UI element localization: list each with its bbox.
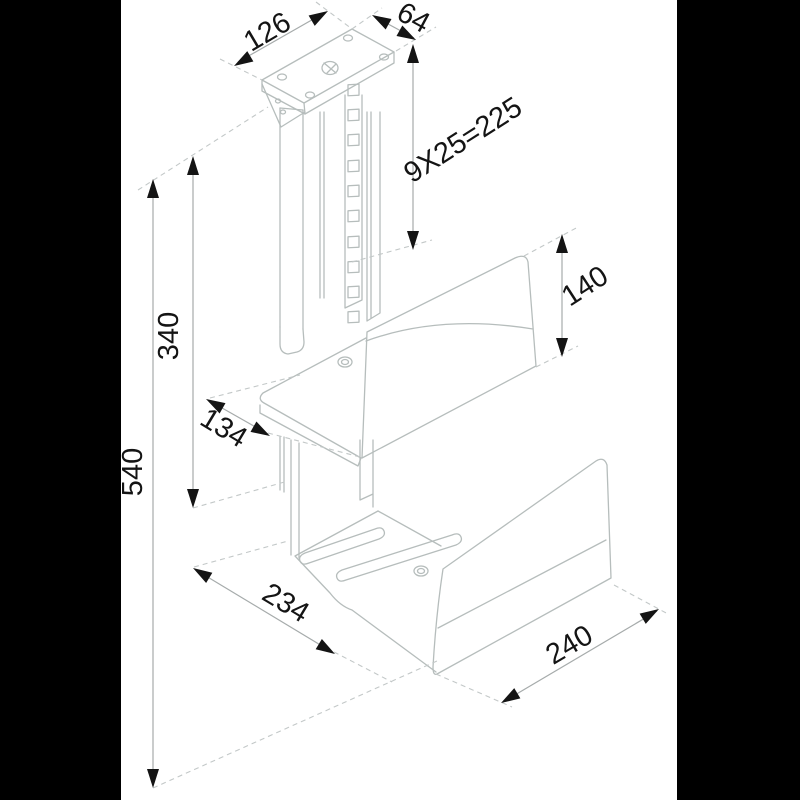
technical-drawing-page: 126 64 9X25=225 340 140 134 540 234 240 [0,0,800,800]
paper-area [121,0,677,800]
cpu-holder-dimension-drawing: 126 64 9X25=225 340 140 134 540 234 240 [0,0,800,800]
dimension-label-column-travel: 340 [153,312,185,360]
dimension-label-overall-height: 540 [117,448,149,496]
